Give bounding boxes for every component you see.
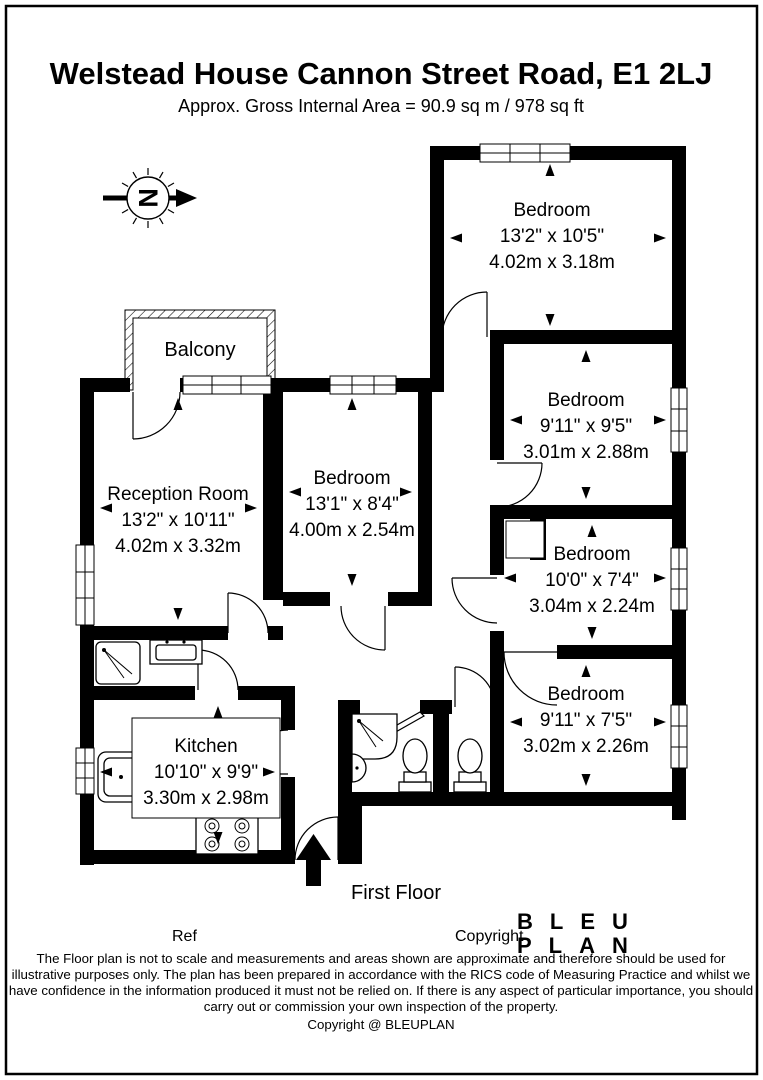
dimension-arrow <box>588 525 597 537</box>
dimension-arrow <box>654 234 666 243</box>
dimension-arrow <box>582 774 591 786</box>
page-subtitle: Approx. Gross Internal Area = 90.9 sq m … <box>178 96 584 116</box>
room-dim-metric: 4.02m x 3.18m <box>489 252 615 273</box>
room-dim-metric: 3.01m x 2.88m <box>523 442 649 463</box>
window <box>671 388 687 452</box>
entrance-arrow-icon <box>296 834 331 886</box>
room-bedroom-right-3: Bedroom 10'0" x 7'4" 3.04m x 2.24m <box>529 544 655 617</box>
dimension-arrow <box>504 574 516 583</box>
room-name: Bedroom <box>513 200 590 221</box>
dimension-arrow <box>400 488 412 497</box>
disclaimer-line: Copyright @ BLEUPLAN <box>307 1017 454 1032</box>
door-arc <box>452 578 497 623</box>
window <box>76 545 94 625</box>
corner-shower-icon <box>352 714 397 759</box>
room-dim-metric: 3.04m x 2.24m <box>529 596 655 617</box>
room-dim-metric: 4.02m x 3.32m <box>115 536 241 557</box>
window <box>183 376 271 394</box>
dimension-arrow <box>450 234 462 243</box>
dimension-arrow <box>174 608 183 620</box>
window <box>671 705 687 768</box>
window <box>480 144 570 162</box>
room-name: Bedroom <box>547 390 624 411</box>
room-dim-imperial: 9'11" x 9'5" <box>540 416 632 437</box>
disclaimer: The Floor plan is not to scale and measu… <box>9 951 753 1032</box>
dimension-arrow <box>214 706 223 718</box>
shower-tray-icon <box>96 642 140 684</box>
toilet-icon <box>454 739 486 792</box>
sink-icon <box>150 640 202 664</box>
door-arc <box>455 667 495 707</box>
north-arrow-icon: N <box>103 168 197 228</box>
dimension-arrow <box>510 416 522 425</box>
room-name: Bedroom <box>313 468 390 489</box>
disclaimer-line: have confidence in the information produ… <box>9 983 753 998</box>
ref-label: Ref <box>172 928 197 945</box>
room-dim-imperial: 9'11" x 7'5" <box>540 710 632 731</box>
room-dim-imperial: 13'1" x 8'4" <box>305 494 399 515</box>
disclaimer-line: illustrative purposes only. The plan has… <box>12 967 751 982</box>
room-dim-imperial: 10'0" x 7'4" <box>545 570 639 591</box>
room-dim-imperial: 13'2" x 10'5" <box>500 226 604 247</box>
room-name: Bedroom <box>547 684 624 705</box>
dimension-arrow <box>348 574 357 586</box>
room-dim-metric: 3.30m x 2.98m <box>143 788 269 809</box>
balcony-label: Balcony <box>164 339 235 361</box>
room-dim-metric: 4.00m x 2.54m <box>289 520 415 541</box>
dimension-arrow <box>588 627 597 639</box>
page-title: Welstead House Cannon Street Road, E1 2L… <box>50 56 713 91</box>
dimension-arrow <box>582 487 591 499</box>
room-dim-imperial: 10'10" x 9'9" <box>154 762 258 783</box>
copyright-label: Copyright <box>455 928 524 945</box>
logo-line-1: BLEU <box>517 909 645 934</box>
floorplan-canvas: Welstead House Cannon Street Road, E1 2L… <box>0 0 763 1080</box>
floor-label: First Floor <box>351 882 441 904</box>
dimension-arrow <box>174 398 183 410</box>
dimension-arrow <box>654 416 666 425</box>
door-arc <box>497 463 542 507</box>
window <box>330 376 396 394</box>
dimension-arrow <box>289 488 301 497</box>
window <box>76 748 94 794</box>
door-arc <box>198 650 238 690</box>
room-reception: Reception Room 13'2" x 10'11" 4.02m x 3.… <box>107 484 249 557</box>
dimension-arrow <box>654 574 666 583</box>
room-dim-imperial: 13'2" x 10'11" <box>121 510 234 531</box>
window <box>671 548 687 610</box>
dimension-arrow <box>510 718 522 727</box>
door-arc <box>228 593 268 633</box>
dimension-arrow <box>546 314 555 326</box>
room-bedroom-right-2: Bedroom 9'11" x 9'5" 3.01m x 2.88m <box>523 390 649 463</box>
room-name: Kitchen <box>174 736 237 757</box>
north-letter: N <box>133 188 163 208</box>
room-name: Bedroom <box>553 544 630 565</box>
door-arc <box>133 392 180 439</box>
disclaimer-line: carry out or commission your own inspect… <box>204 999 559 1014</box>
room-name: Reception Room <box>107 484 249 505</box>
room-bedroom-top-right: Bedroom 13'2" x 10'5" 4.02m x 3.18m <box>489 200 615 273</box>
footer: Ref Copyright BLEU PLAN The Floor plan i… <box>9 909 753 1032</box>
room-bedroom-right-4: Bedroom 9'11" x 7'5" 3.02m x 2.26m <box>523 684 649 757</box>
dimension-arrow <box>654 718 666 727</box>
room-bedroom-middle: Bedroom 13'1" x 8'4" 4.00m x 2.54m <box>289 468 415 541</box>
door-arc <box>341 606 385 650</box>
dimension-arrow <box>582 350 591 362</box>
dimension-arrow <box>582 665 591 677</box>
toilet-icon <box>399 739 431 792</box>
closet-nook <box>506 521 544 558</box>
floor-plan: Balcony <box>76 144 687 904</box>
dimension-arrow <box>348 398 357 410</box>
floorplan-page: Welstead House Cannon Street Road, E1 2L… <box>0 0 763 1080</box>
dimension-arrow <box>546 164 555 176</box>
room-dim-metric: 3.02m x 2.26m <box>523 736 649 757</box>
disclaimer-line: The Floor plan is not to scale and measu… <box>37 951 726 966</box>
door-arc <box>442 292 487 337</box>
